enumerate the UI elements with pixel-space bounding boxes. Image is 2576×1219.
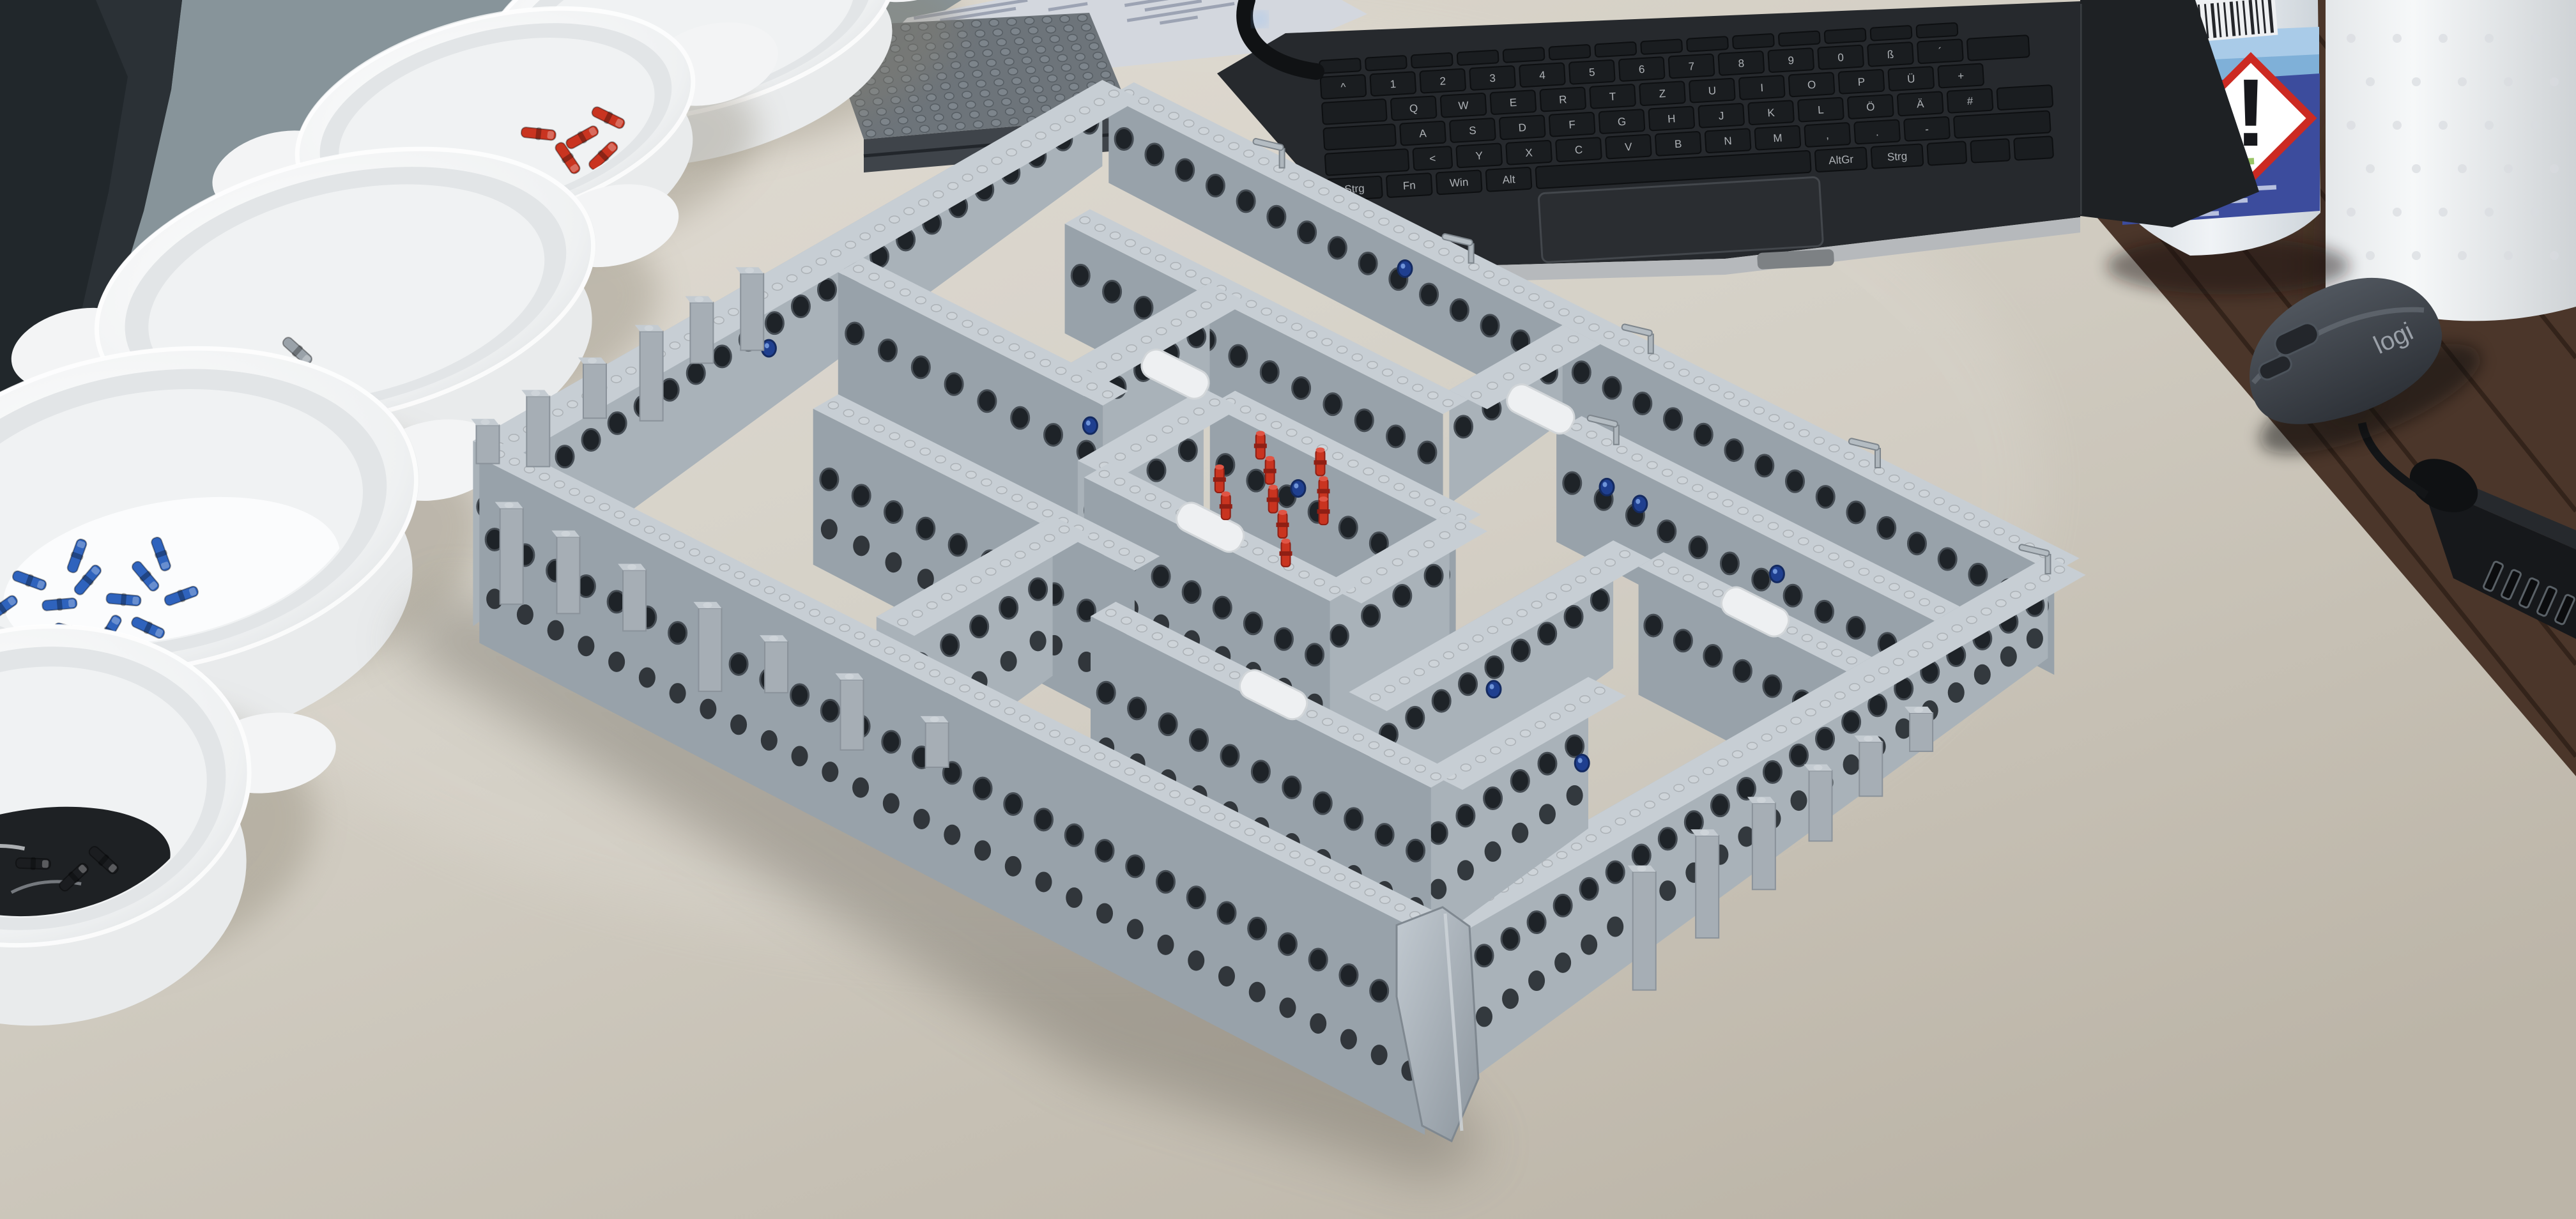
stud (2025, 583, 2035, 590)
tower-face (926, 723, 949, 767)
key-label: G (1617, 116, 1626, 128)
technic-hole (608, 412, 626, 434)
stud (1568, 336, 1579, 343)
red-pin-top (1282, 539, 1291, 544)
stud (1439, 532, 1450, 539)
technic-hole-row2 (1528, 970, 1545, 991)
stud (1505, 739, 1515, 746)
technic-hole (1206, 175, 1224, 197)
technic-hole (1484, 788, 1502, 809)
key-label: Z (1659, 88, 1666, 100)
tower-face (1696, 836, 1719, 938)
technic-hole (885, 502, 903, 523)
stud (859, 417, 869, 424)
stud (1952, 625, 1962, 632)
key (1549, 45, 1590, 60)
baseplate-stud (1012, 77, 1022, 84)
stud (1333, 452, 1343, 459)
stud (1634, 346, 1644, 353)
stud (1103, 391, 1113, 398)
baseplate-stud (877, 108, 886, 115)
stud (629, 519, 640, 526)
red-pin-top (1316, 447, 1325, 452)
technic-hole (1292, 377, 1310, 399)
stud (1050, 730, 1060, 737)
tower-face (1910, 713, 1933, 751)
stud (555, 481, 565, 488)
key-label: Y (1475, 149, 1483, 162)
stud (1320, 866, 1330, 873)
technic-hole (1689, 537, 1707, 558)
stud (816, 258, 826, 265)
technic-hole (1659, 828, 1676, 850)
stud (1121, 617, 1131, 624)
technic-hole (1187, 887, 1205, 908)
stud (1367, 362, 1377, 369)
baseplate-stud (1097, 61, 1107, 68)
stud (1889, 475, 1899, 482)
stud (1783, 530, 1793, 537)
technic-hole (1763, 761, 1781, 783)
stud (1348, 460, 1358, 467)
technic-hole (912, 356, 930, 378)
stud (1004, 707, 1015, 714)
baseplate-stud (947, 52, 957, 59)
technic-hole (1606, 861, 1624, 883)
technic-hole (687, 362, 705, 384)
stud (1338, 726, 1348, 733)
stud (1753, 515, 1763, 522)
key (1325, 149, 1409, 176)
stud (1156, 255, 1166, 262)
baseplate-stud (990, 69, 1000, 76)
key-label: W (1458, 99, 1469, 112)
technic-hole (1393, 585, 1411, 606)
technic-hole (1634, 393, 1652, 415)
key-label: 4 (1539, 69, 1546, 82)
stud (1409, 233, 1419, 240)
stud (1141, 336, 1151, 343)
red-pin-top (1269, 485, 1278, 490)
technic-hole (1252, 761, 1269, 783)
baseplate-stud (902, 127, 912, 134)
stud (1414, 668, 1424, 675)
stud (1110, 760, 1120, 767)
stud (1644, 801, 1655, 808)
baseplate-stud (972, 20, 981, 27)
baseplate-stud (1006, 108, 1015, 115)
stud (1383, 369, 1393, 376)
technic-hole (1237, 190, 1255, 212)
key-label: Fn (1402, 179, 1416, 192)
stud (1487, 382, 1498, 389)
stud (1864, 675, 1874, 682)
baseplate-stud (920, 125, 930, 132)
key-label: 7 (1688, 60, 1695, 73)
stud (802, 266, 812, 273)
technic-hole (1035, 809, 1053, 831)
stud (509, 434, 519, 441)
stud (1529, 294, 1539, 301)
technic-hole-row2 (1457, 860, 1474, 880)
technic-hole (1538, 753, 1556, 774)
stud (1178, 417, 1188, 424)
key-label: 9 (1788, 54, 1795, 67)
stud (1289, 172, 1299, 180)
technic-hole-row2 (1554, 953, 1571, 973)
key (1779, 31, 1820, 47)
technic-hole (1247, 470, 1265, 491)
technic-hole-row2 (1512, 823, 1528, 843)
baseplate-stud (880, 118, 890, 125)
stud (1894, 659, 1904, 666)
tower-stud (703, 602, 712, 608)
stud (828, 402, 838, 409)
baseplate-stud (1026, 66, 1036, 73)
tower-stud (561, 531, 570, 537)
key-label: D (1518, 121, 1526, 134)
stud (1602, 439, 1612, 446)
technic-hole-row2 (1000, 651, 1017, 671)
baseplate-stud (983, 50, 992, 57)
key-label: V (1625, 141, 1633, 153)
technic-pin (16, 857, 51, 871)
technic-hole (1878, 517, 1896, 539)
technic-hole (1847, 502, 1865, 523)
stud (951, 464, 961, 471)
stud (1027, 502, 1038, 509)
stud (966, 471, 976, 479)
stud (626, 367, 636, 374)
stud (1776, 726, 1786, 733)
technic-hole (1790, 744, 1808, 766)
stud (670, 342, 680, 349)
stud (1718, 759, 1728, 766)
stud (904, 208, 914, 215)
baseplate-stud (938, 124, 947, 131)
stud (1156, 328, 1167, 335)
stud (1209, 399, 1220, 406)
technic-hole-row2 (639, 667, 655, 687)
stud (1370, 694, 1380, 701)
technic-hole (1218, 902, 1236, 924)
technic-hole (1752, 569, 1770, 590)
technic-hole-row2 (730, 714, 747, 735)
red-pin-collar (1317, 509, 1330, 514)
technic-hole-row2 (2000, 647, 2017, 667)
technic-hole (1179, 440, 1197, 461)
stud (2011, 591, 2021, 598)
key-label: C (1574, 144, 1583, 157)
key (1927, 141, 1966, 165)
technic-hole (1563, 472, 1581, 494)
baseplate-stud (965, 50, 975, 57)
stud (1557, 852, 1567, 859)
stud (1586, 431, 1597, 438)
cable-led (1255, 14, 1265, 24)
key (1319, 58, 1361, 73)
stud (675, 541, 685, 548)
stud (1045, 534, 1055, 541)
stud (1574, 316, 1584, 323)
towel-dimple (2550, 77, 2559, 86)
stud (869, 273, 879, 280)
technic-hole-row2 (883, 793, 900, 813)
baseplate-stud (974, 121, 983, 128)
key-label: ^ (1340, 81, 1346, 93)
stud (1761, 734, 1772, 741)
technic-hole (1711, 795, 1729, 816)
blue-pin-in-hole (1487, 681, 1501, 698)
stud (962, 320, 972, 327)
pin-collar (31, 857, 36, 870)
key-label: P (1857, 75, 1865, 88)
technic-hole (1298, 222, 1316, 243)
stud (1287, 429, 1297, 436)
baseplate-stud (1029, 27, 1038, 34)
towel-dimple (2439, 208, 2448, 217)
baseplate-stud (1046, 26, 1055, 33)
stud (1050, 124, 1061, 131)
technic-hole (1213, 597, 1231, 618)
baseplate-stud (1085, 33, 1095, 40)
technic-hole (1429, 822, 1447, 844)
key (1365, 56, 1407, 71)
stud (1184, 120, 1194, 127)
blue-pin-in-hole (1083, 417, 1097, 434)
technic-hole (1784, 585, 1802, 606)
tower-stud (1700, 830, 1709, 836)
towel-dimple (2347, 208, 2356, 217)
technic-hole (974, 778, 992, 799)
technic-hole-row2 (1476, 1006, 1492, 1027)
technic-hole (1159, 714, 1177, 735)
technic-hole (669, 622, 687, 644)
stud (599, 503, 609, 510)
stud (962, 174, 972, 181)
stud (884, 281, 894, 288)
stud (1791, 717, 1801, 724)
red-pin-top (1256, 431, 1265, 436)
stud (714, 317, 724, 324)
stud (1802, 634, 1813, 641)
key (1733, 34, 1774, 49)
technic-hole (1475, 945, 1493, 967)
stud (1126, 345, 1137, 352)
stud (1246, 300, 1257, 307)
stud (1214, 135, 1224, 142)
key-label: F (1568, 118, 1575, 131)
technic-hole-row2 (822, 762, 838, 782)
stud (1694, 377, 1704, 384)
stud (1859, 568, 1869, 575)
stud (1065, 115, 1075, 122)
stud (1171, 319, 1181, 326)
tower-stud (645, 325, 654, 331)
baseplate-stud (1069, 83, 1078, 90)
stud (1112, 353, 1122, 360)
technic-hole (1071, 264, 1089, 286)
technic-hole (1644, 615, 1662, 636)
stud (1169, 112, 1179, 119)
stud (1271, 422, 1282, 429)
technic-hole (1097, 682, 1115, 703)
stud (1365, 889, 1375, 896)
technic-hole (1283, 776, 1301, 798)
tower-face (1752, 803, 1775, 889)
stud (1829, 445, 1839, 452)
stud (1502, 618, 1512, 625)
technic-hole (1278, 933, 1296, 955)
stud (1859, 460, 1869, 467)
technic-hole (1309, 949, 1327, 970)
stud (1137, 625, 1147, 632)
photo-stage: !logi^1234567890ß´QWERTZUIOPÜ+ASDFGHJKLÖ… (0, 0, 2576, 1219)
stud (1425, 499, 1435, 506)
stud (1364, 211, 1374, 218)
key-label: Win (1450, 176, 1469, 190)
stud (1170, 263, 1181, 270)
stud (1146, 494, 1156, 501)
stud (1428, 392, 1438, 399)
technic-hole (1512, 640, 1529, 661)
stud (1030, 543, 1040, 550)
baseplate-stud (1002, 98, 1011, 105)
technic-hole (791, 684, 809, 706)
key (1411, 53, 1453, 68)
technic-hole-row2 (1036, 871, 1052, 892)
tower-face (526, 396, 549, 466)
technic-hole-row2 (548, 620, 564, 641)
stud (611, 376, 622, 383)
technic-hole (978, 390, 996, 412)
stud (1692, 484, 1703, 491)
stud (1399, 677, 1409, 684)
stud (1668, 567, 1678, 574)
stud (1575, 576, 1586, 583)
technic-hole (1339, 517, 1357, 539)
technic-hole (1268, 206, 1285, 227)
stud (1012, 494, 1022, 502)
baseplate-stud (1020, 97, 1029, 104)
stud (1768, 523, 1778, 530)
baseplate-stud (1018, 47, 1028, 54)
stud (1080, 107, 1090, 114)
technic-hole-row2 (1188, 951, 1204, 971)
stud (659, 533, 670, 540)
stud (1708, 492, 1718, 499)
stud (1536, 355, 1546, 362)
stud (1659, 793, 1669, 800)
technic-hole (846, 323, 864, 344)
technic-hole (1425, 565, 1443, 586)
baseplate-stud (976, 30, 985, 37)
baseplate-stud (944, 93, 954, 100)
stud (889, 216, 900, 223)
stud (735, 572, 745, 579)
technic-hole (1340, 964, 1358, 986)
stud (1230, 671, 1240, 678)
stud (1087, 383, 1097, 390)
technic-hole (556, 446, 574, 468)
baseplate-stud (984, 100, 993, 107)
towel-dimple (2347, 121, 2356, 130)
stud (977, 165, 987, 172)
technic-hole-row2 (1340, 1029, 1357, 1050)
stud (990, 700, 1000, 707)
stud (1302, 437, 1312, 444)
technic-hole (1704, 645, 1722, 667)
key-label: L (1818, 103, 1825, 116)
stud (1905, 591, 1915, 598)
technic-hole (1147, 459, 1165, 481)
stud (1632, 454, 1642, 461)
stud (1199, 128, 1209, 135)
technic-hole (1306, 644, 1324, 666)
red-pin-top (1319, 476, 1328, 481)
stud (1230, 821, 1240, 828)
tower-face (500, 509, 523, 604)
stud (915, 663, 925, 670)
stud (1874, 576, 1884, 583)
blue-pin-glint (765, 343, 769, 348)
blue-pin-glint (1294, 483, 1298, 488)
technic-hole (1459, 673, 1477, 695)
key-label: - (1925, 123, 1929, 135)
key (1457, 50, 1499, 65)
stud (1649, 354, 1659, 361)
technic-hole (1756, 455, 1774, 477)
red-pin-collar (1254, 443, 1267, 448)
stud (1817, 642, 1827, 649)
key-label: 5 (1589, 66, 1596, 79)
baseplate-stud (988, 109, 997, 116)
baseplate-stud (952, 112, 962, 119)
tower-stud (1914, 707, 1923, 713)
stud (1487, 627, 1498, 634)
towel-body (2326, 0, 2576, 321)
stud (1520, 364, 1530, 371)
towel-dimple (2458, 77, 2467, 86)
stud (1491, 747, 1501, 754)
stud (1471, 392, 1482, 399)
stud (1565, 704, 1575, 711)
tower-stud (505, 502, 514, 508)
towel-dimple (2531, 34, 2540, 43)
baseplate-stud (1082, 24, 1091, 31)
stud (870, 640, 880, 647)
key-label: O (1807, 79, 1816, 91)
stud (1814, 546, 1824, 553)
stud (1043, 510, 1053, 517)
stud (1290, 851, 1300, 858)
technic-hole (1580, 878, 1598, 900)
technic-hole (1248, 917, 1266, 939)
tower-stud (1864, 736, 1873, 742)
key-label: B (1674, 138, 1682, 151)
technic-hole-row2 (1974, 664, 1991, 685)
tower-stud (627, 564, 636, 570)
technic-hole-row2 (1581, 935, 1597, 955)
stud (585, 496, 595, 503)
technic-hole (949, 534, 967, 556)
technic-hole (1481, 315, 1499, 337)
stud (927, 602, 937, 609)
stud (1089, 533, 1099, 540)
stud (1703, 767, 1713, 774)
key-label: J (1718, 110, 1724, 122)
baseplate-stud (930, 104, 940, 111)
